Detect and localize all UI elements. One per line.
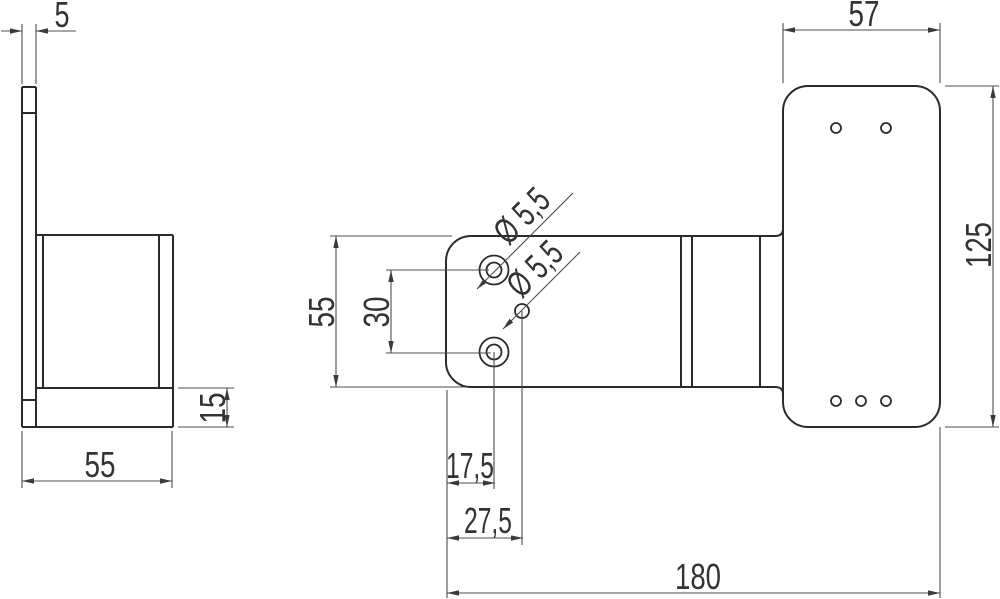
dim-side-width-label: 55 <box>85 444 116 485</box>
side-view <box>22 87 173 427</box>
bottom-extension-lines <box>447 311 940 598</box>
dim-front-hole1-offset: 17,5 <box>446 445 495 486</box>
dim-front-hole-spacing-label: 30 <box>356 297 397 328</box>
dim-side-thickness-label: 5 <box>55 0 70 35</box>
dim-end-width: 57 <box>783 0 940 83</box>
drawing-canvas: 5 55 15 55 30 Ø 5,5 <box>0 0 1000 599</box>
dim-front-overall-length-label: 180 <box>675 556 721 597</box>
dim-side-thickness: 5 <box>1 0 76 84</box>
technical-drawing: 5 55 15 55 30 Ø 5,5 <box>0 0 1000 599</box>
dim-end-height-label: 125 <box>958 222 999 268</box>
end-hole-bottom-left <box>831 396 841 406</box>
end-view <box>783 86 940 427</box>
dim-side-base-height-label: 15 <box>192 393 233 424</box>
dim-extension-lines <box>330 236 468 387</box>
dim-end-height: 125 <box>945 86 999 427</box>
side-view-outline <box>22 87 173 427</box>
end-hole-bottom-middle <box>856 396 866 406</box>
dim-front-hole2-offset: 27,5 <box>447 500 523 541</box>
dim-front-hole-spacing: 30 <box>356 270 491 353</box>
front-view-outline <box>446 229 783 394</box>
end-hole-top-right <box>881 123 891 133</box>
bend-lines <box>681 236 760 387</box>
dim-end-width-label: 57 <box>849 0 880 34</box>
dim-front-overall-length: 180 <box>447 556 940 597</box>
end-hole-bottom-right <box>881 396 891 406</box>
end-view-outline <box>783 86 940 427</box>
dim-front-hole2-offset-label: 27,5 <box>464 500 512 541</box>
dim-extension-lines <box>22 24 36 84</box>
front-view <box>446 229 783 394</box>
dim-extension-lines <box>386 270 491 353</box>
end-hole-top-left <box>831 123 841 133</box>
dim-front-hole1-offset-label: 17,5 <box>446 445 494 486</box>
dim-side-width: 55 <box>22 431 172 488</box>
dim-side-base-height: 15 <box>178 388 234 427</box>
dim-front-height-label: 55 <box>301 297 342 328</box>
